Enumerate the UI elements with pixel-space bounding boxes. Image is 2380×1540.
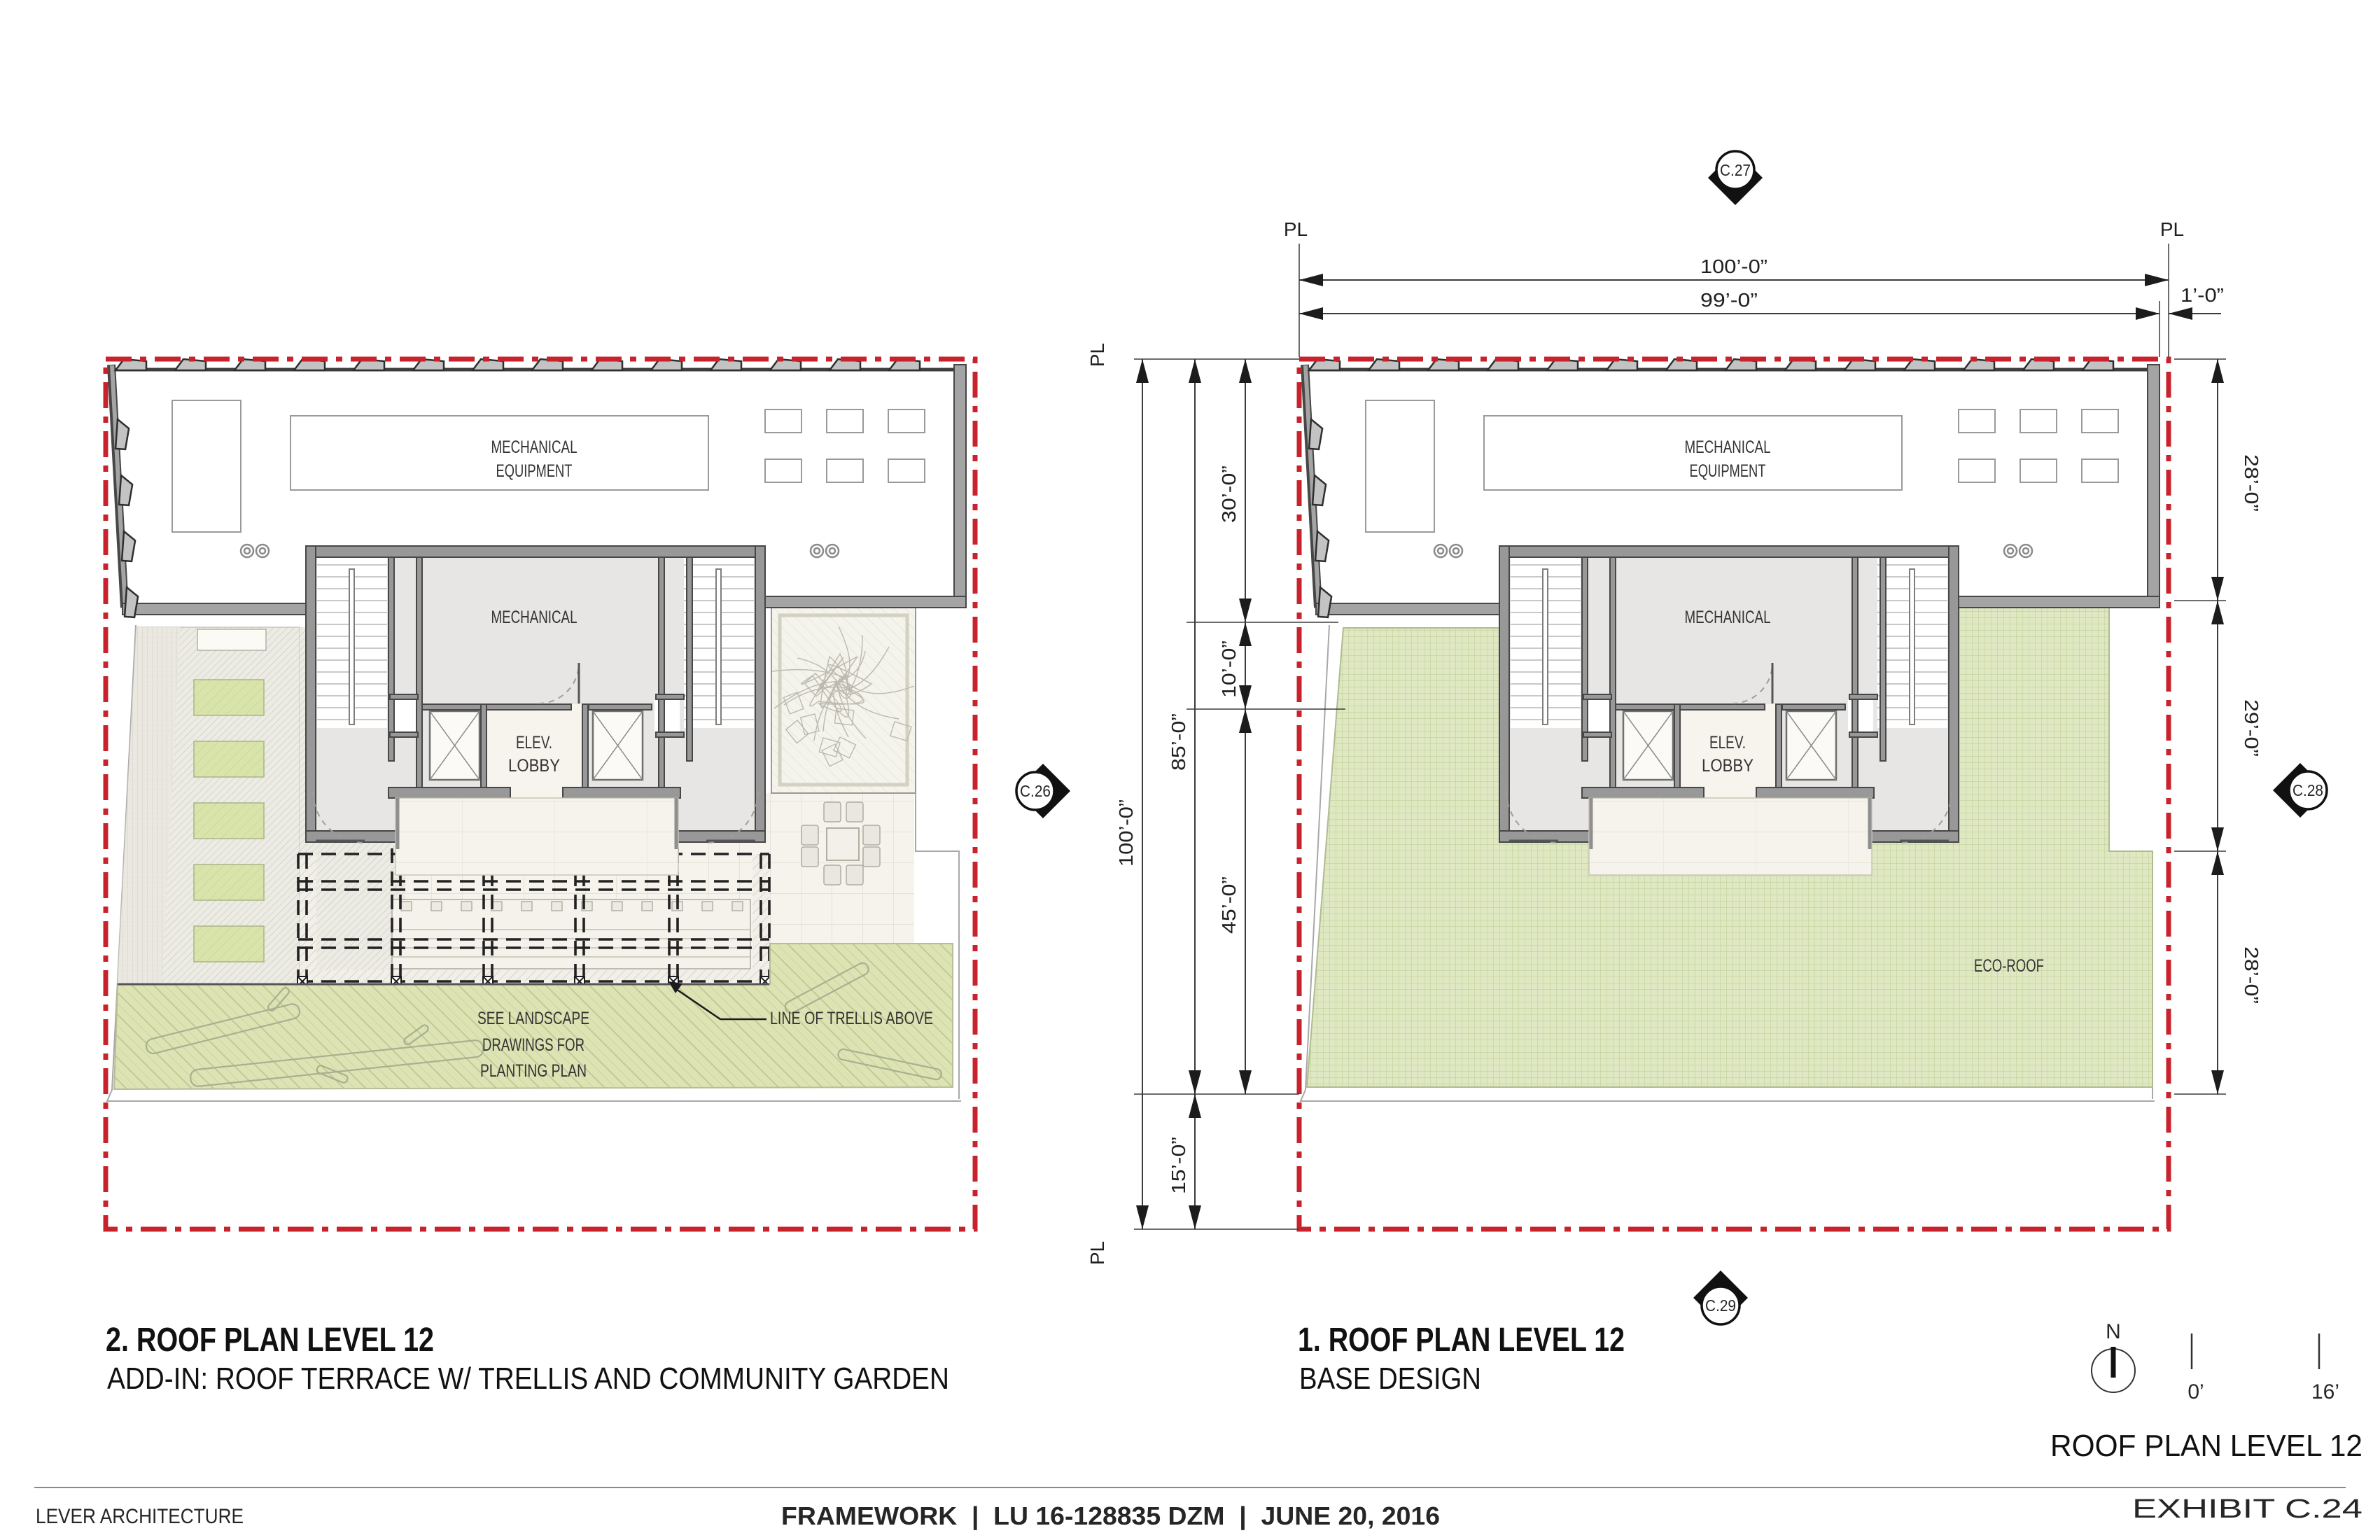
svg-text:ELEV.: ELEV. [516, 733, 552, 752]
svg-text:1. ROOF PLAN LEVEL 12: 1. ROOF PLAN LEVEL 12 [1298, 1322, 1625, 1359]
svg-text:MECHANICAL: MECHANICAL [491, 437, 577, 457]
svg-text:LOBBY: LOBBY [1702, 756, 1753, 776]
svg-text:28’-0”: 28’-0” [2241, 454, 2262, 512]
svg-text:EQUIPMENT: EQUIPMENT [496, 461, 573, 481]
svg-text:99’-0”: 99’-0” [1700, 289, 1758, 311]
svg-text:C.27: C.27 [1720, 161, 1751, 179]
svg-text:0’: 0’ [2187, 1380, 2204, 1403]
svg-text:45’-0”: 45’-0” [1218, 876, 1240, 934]
svg-text:100’-0”: 100’-0” [1700, 255, 1767, 277]
svg-text:PL: PL [1284, 218, 1308, 240]
svg-text:ROOF PLAN LEVEL 12: ROOF PLAN LEVEL 12 [2050, 1429, 2362, 1463]
svg-text:85’-0”: 85’-0” [1168, 713, 1189, 771]
svg-text:C.29: C.29 [1705, 1296, 1736, 1315]
svg-text:FRAMEWORK | LU 16-128835 DZM: FRAMEWORK | LU 16-128835 DZM | JUNE 20, … [781, 1501, 1440, 1531]
svg-text:LINE OF TRELLIS ABOVE: LINE OF TRELLIS ABOVE [770, 1009, 933, 1028]
svg-text:BASE DESIGN: BASE DESIGN [1299, 1361, 1481, 1396]
svg-text:DRAWINGS FOR: DRAWINGS FOR [482, 1035, 584, 1055]
svg-text:ECO-ROOF: ECO-ROOF [1974, 956, 2044, 976]
svg-text:LEVER ARCHITECTURE: LEVER ARCHITECTURE [36, 1505, 244, 1528]
svg-text:PL: PL [1086, 343, 1108, 367]
svg-text:1’-0”: 1’-0” [2180, 284, 2224, 306]
svg-text:LOBBY: LOBBY [508, 756, 560, 776]
svg-text:N: N [2106, 1320, 2121, 1343]
svg-text:MECHANICAL: MECHANICAL [1685, 437, 1771, 457]
svg-text:29’-0”: 29’-0” [2241, 699, 2262, 757]
svg-text:EXHIBIT C.24: EXHIBIT C.24 [2132, 1494, 2362, 1524]
svg-text:MECHANICAL: MECHANICAL [1685, 608, 1771, 627]
svg-text:ADD-IN: ROOF TERRACE W/ TRELLI: ADD-IN: ROOF TERRACE W/ TRELLIS AND COMM… [107, 1361, 949, 1396]
svg-text:SEE LANDSCAPE: SEE LANDSCAPE [477, 1009, 589, 1028]
svg-text:28’-0”: 28’-0” [2241, 946, 2262, 1004]
svg-text:16’: 16’ [2311, 1380, 2339, 1403]
svg-text:PL: PL [1086, 1241, 1108, 1265]
svg-text:EQUIPMENT: EQUIPMENT [1690, 461, 1766, 481]
svg-text:10’-0”: 10’-0” [1218, 640, 1240, 698]
svg-text:ELEV.: ELEV. [1709, 733, 1746, 752]
svg-text:C.26: C.26 [1020, 782, 1051, 800]
svg-text:100’-0”: 100’-0” [1115, 799, 1137, 867]
svg-text:2. ROOF PLAN LEVEL 12: 2. ROOF PLAN LEVEL 12 [106, 1322, 434, 1359]
svg-text:MECHANICAL: MECHANICAL [491, 608, 577, 627]
svg-text:PLANTING PLAN: PLANTING PLAN [480, 1061, 587, 1081]
svg-text:15’-0”: 15’-0” [1168, 1137, 1189, 1194]
svg-text:C.28: C.28 [2292, 781, 2323, 799]
svg-text:PL: PL [2160, 218, 2184, 240]
svg-text:30’-0”: 30’-0” [1218, 465, 1240, 523]
